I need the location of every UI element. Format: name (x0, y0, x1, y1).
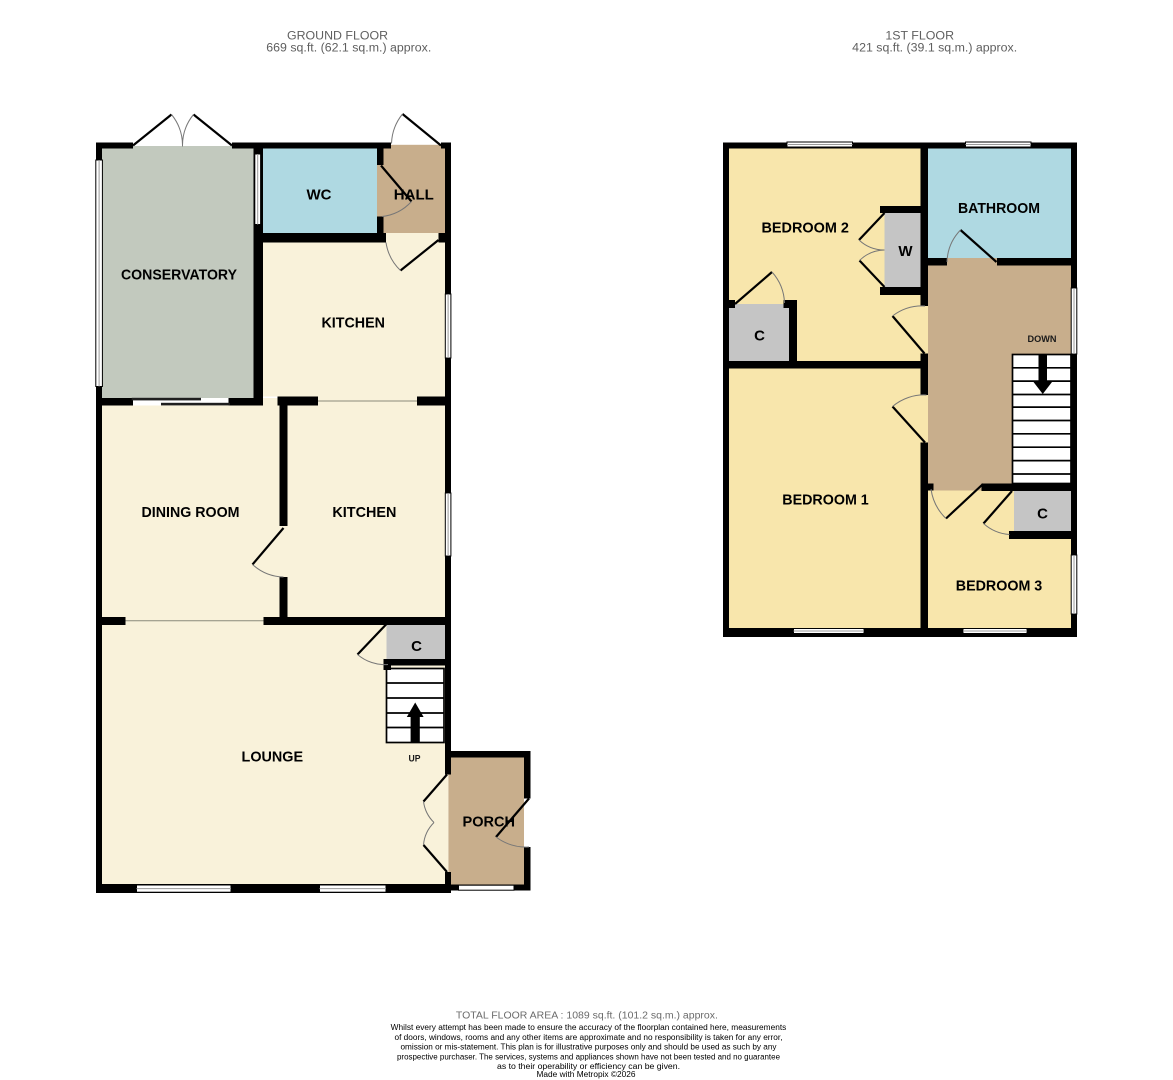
svg-text:WC: WC (307, 186, 332, 203)
svg-text:C: C (411, 638, 422, 655)
svg-text:GROUND FLOOR: GROUND FLOOR (287, 31, 388, 43)
svg-text:of doors, windows, rooms and a: of doors, windows, rooms and any other i… (395, 1033, 783, 1042)
svg-text:C: C (754, 328, 765, 345)
svg-text:Made with Metropix ©2026: Made with Metropix ©2026 (537, 1070, 637, 1079)
svg-text:KITCHEN: KITCHEN (332, 504, 396, 521)
svg-text:DOWN: DOWN (1028, 334, 1057, 344)
svg-text:omission or mis-statement. Thi: omission or mis-statement. This plan is … (401, 1043, 777, 1052)
svg-text:BATHROOM: BATHROOM (958, 200, 1040, 217)
svg-text:BEDROOM 3: BEDROOM 3 (956, 578, 1043, 595)
svg-text:BEDROOM 2: BEDROOM 2 (761, 220, 849, 237)
svg-text:PORCH: PORCH (463, 814, 516, 831)
svg-text:TOTAL FLOOR AREA : 1089 sq.ft.: TOTAL FLOOR AREA : 1089 sq.ft. (101.2 sq… (456, 1011, 718, 1022)
svg-text:W: W (898, 243, 913, 260)
svg-text:DINING ROOM: DINING ROOM (142, 504, 240, 521)
svg-text:1ST FLOOR: 1ST FLOOR (885, 31, 954, 43)
svg-text:prospective purchaser. The ser: prospective purchaser. The services, sys… (397, 1052, 781, 1061)
svg-text:KITCHEN: KITCHEN (321, 315, 385, 332)
svg-text:Whilst every attempt has been: Whilst every attempt has been made to en… (391, 1023, 787, 1032)
svg-text:669 sq.ft. (62.1 sq.m.) approx: 669 sq.ft. (62.1 sq.m.) approx. (266, 43, 431, 55)
svg-text:BEDROOM 1: BEDROOM 1 (782, 492, 869, 509)
svg-text:LOUNGE: LOUNGE (242, 749, 304, 766)
svg-text:421 sq.ft. (39.1 sq.m.) approx: 421 sq.ft. (39.1 sq.m.) approx. (852, 43, 1017, 55)
svg-text:UP: UP (409, 754, 421, 764)
svg-text:CONSERVATORY: CONSERVATORY (121, 267, 237, 284)
svg-text:C: C (1037, 506, 1048, 523)
